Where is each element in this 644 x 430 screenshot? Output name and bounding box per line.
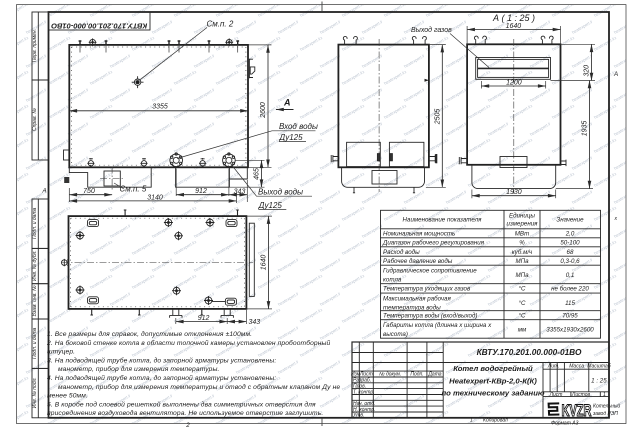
svg-text:Подп. и дата: Подп. и дата (32, 207, 38, 239)
svg-text:320: 320 (584, 65, 591, 77)
svg-text:КВТУ.170.201.00.000-01ВО: КВТУ.170.201.00.000-01ВО (51, 22, 147, 31)
svg-text:Котел водогрейный: Котел водогрейный (453, 364, 533, 373)
svg-text:манометр, прибор для измерения: манометр, прибор для измерения температу… (58, 365, 220, 373)
svg-text:1: 1 (470, 418, 473, 424)
svg-text:2505: 2505 (435, 109, 442, 126)
svg-text:Утв.: Утв. (353, 413, 364, 419)
svg-text:по техническому заданию: по техническому заданию (441, 389, 544, 398)
svg-text:МВт: МВт (515, 231, 529, 238)
svg-text:Наименование показателя: Наименование показателя (403, 217, 483, 224)
svg-text:А ( 1 : 25 ): А ( 1 : 25 ) (492, 13, 535, 23)
svg-text:Перв. примен.: Перв. примен. (32, 29, 38, 62)
svg-text:1930: 1930 (506, 189, 522, 196)
svg-text:2: 2 (185, 422, 190, 429)
svg-text:котла: котла (383, 277, 402, 284)
svg-text:штуцер.: штуцер. (47, 349, 75, 356)
svg-text:1640: 1640 (506, 23, 522, 30)
svg-text:манометр, прибор для измерения: манометр, прибор для измерения температу… (58, 383, 340, 391)
svg-text:3355х1930х2600: 3355х1930х2600 (546, 327, 594, 334)
svg-text:912: 912 (198, 315, 210, 322)
svg-text:0,3-0,6: 0,3-0,6 (560, 258, 580, 265)
svg-text:Ду125: Ду125 (279, 133, 304, 142)
svg-text:Масса: Масса (569, 364, 584, 370)
svg-text:мм: мм (518, 327, 527, 334)
svg-text:Листов: Листов (571, 392, 591, 398)
svg-text:Лит.: Лит. (547, 364, 560, 370)
svg-text:3140: 3140 (147, 195, 163, 202)
svg-text:2. На боковой стенке котла в о: 2. На боковой стенке котла в области топ… (46, 339, 331, 347)
svg-text:KVZR: KVZR (562, 402, 592, 420)
svg-text:Взам. инв. №: Взам. инв. № (32, 285, 38, 317)
svg-text:Значение: Значение (556, 217, 584, 224)
svg-text:465: 465 (253, 168, 260, 180)
svg-text:Расход воды: Расход воды (383, 249, 420, 256)
svg-text:Температура уходящих газов: Температура уходящих газов (383, 286, 471, 293)
svg-text:1935: 1935 (582, 121, 589, 137)
svg-text:%: % (519, 240, 525, 247)
svg-text:Температура воды (вход/выход): Температура воды (вход/выход) (383, 312, 477, 319)
svg-text:Рабочее давление воды: Рабочее давление воды (383, 258, 453, 265)
svg-text:1640: 1640 (261, 255, 268, 271)
svg-text:№ докум.: № докум. (379, 372, 401, 378)
svg-text:Инв. № подл.: Инв. № подл. (32, 377, 38, 408)
svg-text:Инв. № дубл.: Инв. № дубл. (32, 250, 38, 281)
svg-text:Heatexpert-КВр-2,0-К(К): Heatexpert-КВр-2,0-К(К) (449, 376, 537, 385)
svg-text:измерения: измерения (507, 221, 539, 228)
svg-text:70/95: 70/95 (562, 312, 578, 319)
svg-text:Габариты котла (длинна х ширин: Габариты котла (длинна х ширина х (383, 322, 492, 329)
svg-text:Котельный: Котельный (593, 403, 620, 410)
svg-text:А: А (42, 188, 47, 195)
svg-text:Выход газов: Выход газов (411, 26, 452, 34)
svg-text:Диапазон рабочего регулировани: Диапазон рабочего регулирования (382, 240, 485, 247)
svg-text:Формат А3: Формат А3 (551, 421, 579, 427)
svg-text:Масштаб: Масштаб (587, 364, 611, 370)
svg-text:присоединения воздуховода вент: присоединения воздуховода вентилятора. Н… (47, 409, 323, 417)
svg-text:высота): высота) (383, 331, 408, 338)
svg-text:750: 750 (83, 188, 95, 195)
svg-text:куб.м/ч: куб.м/ч (512, 249, 533, 256)
svg-text:Копировал: Копировал (483, 418, 508, 424)
svg-text:Выход воды: Выход воды (258, 188, 303, 197)
svg-text:115: 115 (565, 300, 575, 307)
svg-text:КВТУ.170.201.00.000-01ВО: КВТУ.170.201.00.000-01ВО (477, 347, 582, 357)
svg-text:Гидравлическое сопротивление: Гидравлическое сопротивление (383, 268, 477, 275)
svg-text:А: А (613, 71, 618, 78)
svg-text:Лист: Лист (549, 392, 563, 398)
svg-text:5. В коробе под слоевой решетк: 5. В коробе под слоевой решеткой выполне… (47, 400, 316, 408)
svg-text:МПа: МПа (515, 272, 529, 279)
svg-text:1200: 1200 (506, 79, 522, 86)
svg-text:Подп. и дата: Подп. и дата (32, 327, 38, 359)
svg-text:50-100: 50-100 (560, 240, 580, 247)
svg-text:А: А (283, 98, 291, 108)
svg-text:343: 343 (249, 319, 261, 326)
svg-text:1: 1 (603, 392, 606, 398)
svg-text:4. На подводящей трубе котла,: 4. На подводящей трубе котла, до запорно… (47, 374, 276, 382)
svg-text:°С: °С (519, 312, 526, 319)
svg-text:3355: 3355 (152, 104, 168, 111)
svg-text:Единицы: Единицы (509, 213, 535, 220)
svg-text:Справ. №: Справ. № (32, 108, 38, 131)
svg-text:2600: 2600 (260, 102, 267, 119)
svg-text:температура воды: температура воды (383, 304, 441, 311)
svg-text:1 : 25: 1 : 25 (591, 378, 607, 385)
svg-text:МПа: МПа (515, 258, 529, 265)
svg-text:менее 50мм.: менее 50мм. (47, 393, 88, 400)
svg-text:См.п. 5: См.п. 5 (120, 185, 147, 194)
svg-text:Т. контр.: Т. контр. (353, 389, 375, 395)
svg-text:2,0: 2,0 (565, 231, 575, 238)
svg-text:завод РЭП: завод РЭП (592, 411, 618, 417)
svg-text:°С: °С (519, 286, 526, 293)
svg-text:Ду125: Ду125 (258, 201, 283, 210)
svg-text:°С: °С (519, 300, 526, 307)
svg-text:Вход воды: Вход воды (279, 122, 318, 131)
svg-text:343: 343 (234, 189, 246, 196)
svg-text:912: 912 (195, 188, 207, 195)
svg-text:68: 68 (567, 249, 574, 256)
svg-text:См.п. 2: См.п. 2 (207, 20, 234, 29)
svg-text:0,1: 0,1 (566, 272, 575, 279)
svg-text:1. Все размеры для справок, до: 1. Все размеры для справок, допустимые о… (47, 330, 252, 338)
svg-text:не более 220: не более 220 (551, 286, 589, 293)
svg-text:х: х (614, 216, 618, 222)
svg-text:Дата: Дата (427, 372, 441, 378)
svg-text:Подп.: Подп. (410, 372, 423, 378)
svg-text:Номинальная мощность: Номинальная мощность (383, 231, 455, 238)
svg-text:Максимальная рабочая: Максимальная рабочая (383, 295, 451, 302)
svg-text:3. На подводящей трубе котла,: 3. На подводящей трубе котла, до запорно… (47, 356, 276, 364)
